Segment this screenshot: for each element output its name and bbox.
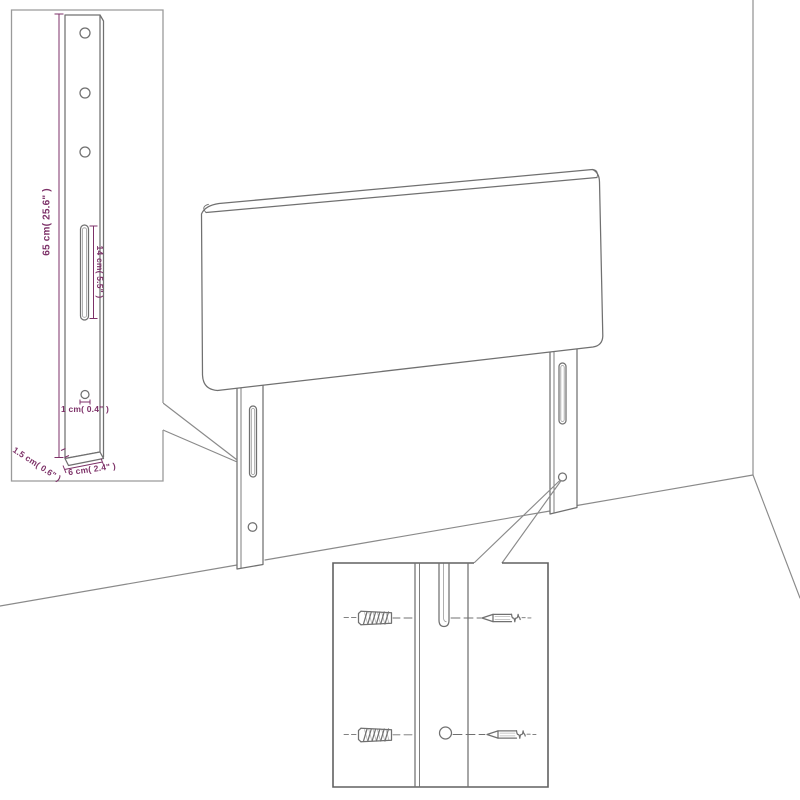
screw-detail-inset (333, 563, 548, 787)
post-hole-1 (80, 28, 90, 38)
dim-label-height: 65 cm( 25.6" ) (42, 188, 53, 256)
right-leg (550, 349, 577, 514)
dim-label-slot-length: 14 cm( 5.5" ) (95, 246, 105, 299)
floor-line-mid (265, 511, 550, 560)
post-slot (81, 225, 89, 320)
left-leg-slot (250, 406, 257, 477)
post-hole-2 (80, 88, 90, 98)
inset-hole (440, 727, 452, 739)
right-leg-hole (559, 473, 567, 481)
diagram-canvas (0, 0, 800, 800)
left-leg (237, 385, 263, 569)
floor-line-right (753, 475, 800, 598)
dim-label-hole-diameter: 1 cm( 0.4" ) (61, 404, 109, 414)
headboard-panel-outline (202, 170, 603, 391)
headboard-panel (202, 170, 603, 391)
left-leg-hole (248, 523, 257, 532)
right-leg-slot (559, 363, 566, 424)
diagram-stage: 65 cm( 25.6" ) 14 cm( 5.5" ) 1 cm( 0.4" … (0, 0, 800, 800)
post-hole-3 (80, 147, 90, 157)
floor-line-near-corner (577, 475, 753, 506)
floor-line-left (0, 565, 237, 606)
post-small-hole (81, 391, 89, 399)
callout-lines-left (163, 403, 237, 462)
